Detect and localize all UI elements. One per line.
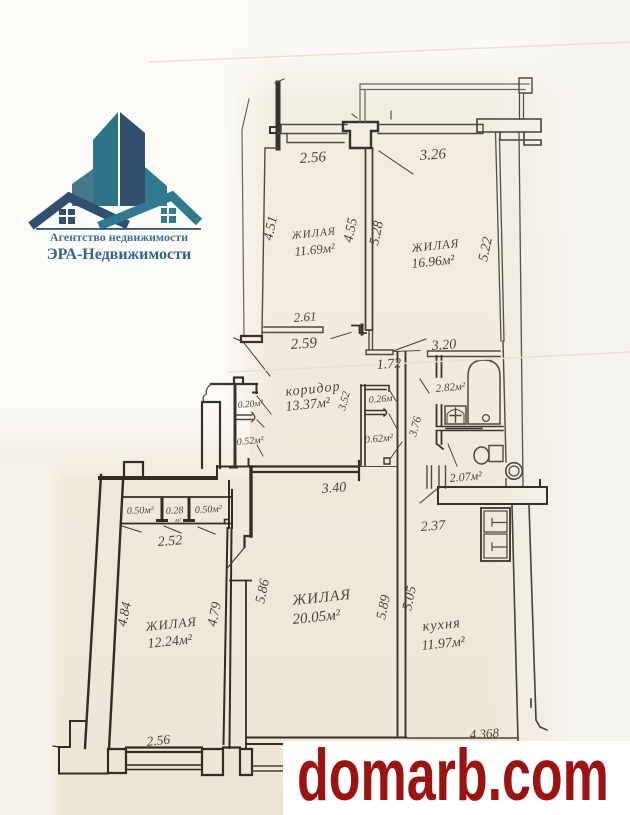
svg-text:2.56: 2.56 — [146, 732, 171, 749]
svg-text:2.61: 2.61 — [293, 308, 317, 325]
svg-text:3.20: 3.20 — [430, 337, 456, 354]
svg-text:2.52: 2.52 — [157, 533, 182, 550]
svg-text:2.07м²: 2.07м² — [449, 468, 483, 485]
svg-text:0.28: 0.28 — [166, 505, 184, 517]
svg-text:3.40: 3.40 — [320, 480, 346, 497]
svg-text:1.72: 1.72 — [376, 356, 401, 373]
svg-text:2.59: 2.59 — [290, 335, 318, 353]
svg-text:domarb.com: domarb.com — [297, 735, 609, 815]
svg-text:2.56: 2.56 — [299, 149, 327, 167]
svg-text:0.50м²: 0.50м² — [195, 504, 223, 516]
svg-text:м²: м² — [174, 517, 182, 524]
svg-text:0.50м²: 0.50м² — [127, 505, 155, 517]
svg-text:3.26: 3.26 — [418, 146, 447, 164]
svg-text:0.26м: 0.26м — [368, 393, 393, 406]
svg-text:2.37: 2.37 — [420, 518, 446, 535]
svg-text:ЭРА-Недвижимости: ЭРА-Недвижимости — [47, 246, 191, 263]
svg-text:Агентство недвижимости: Агентство недвижимости — [50, 230, 188, 244]
